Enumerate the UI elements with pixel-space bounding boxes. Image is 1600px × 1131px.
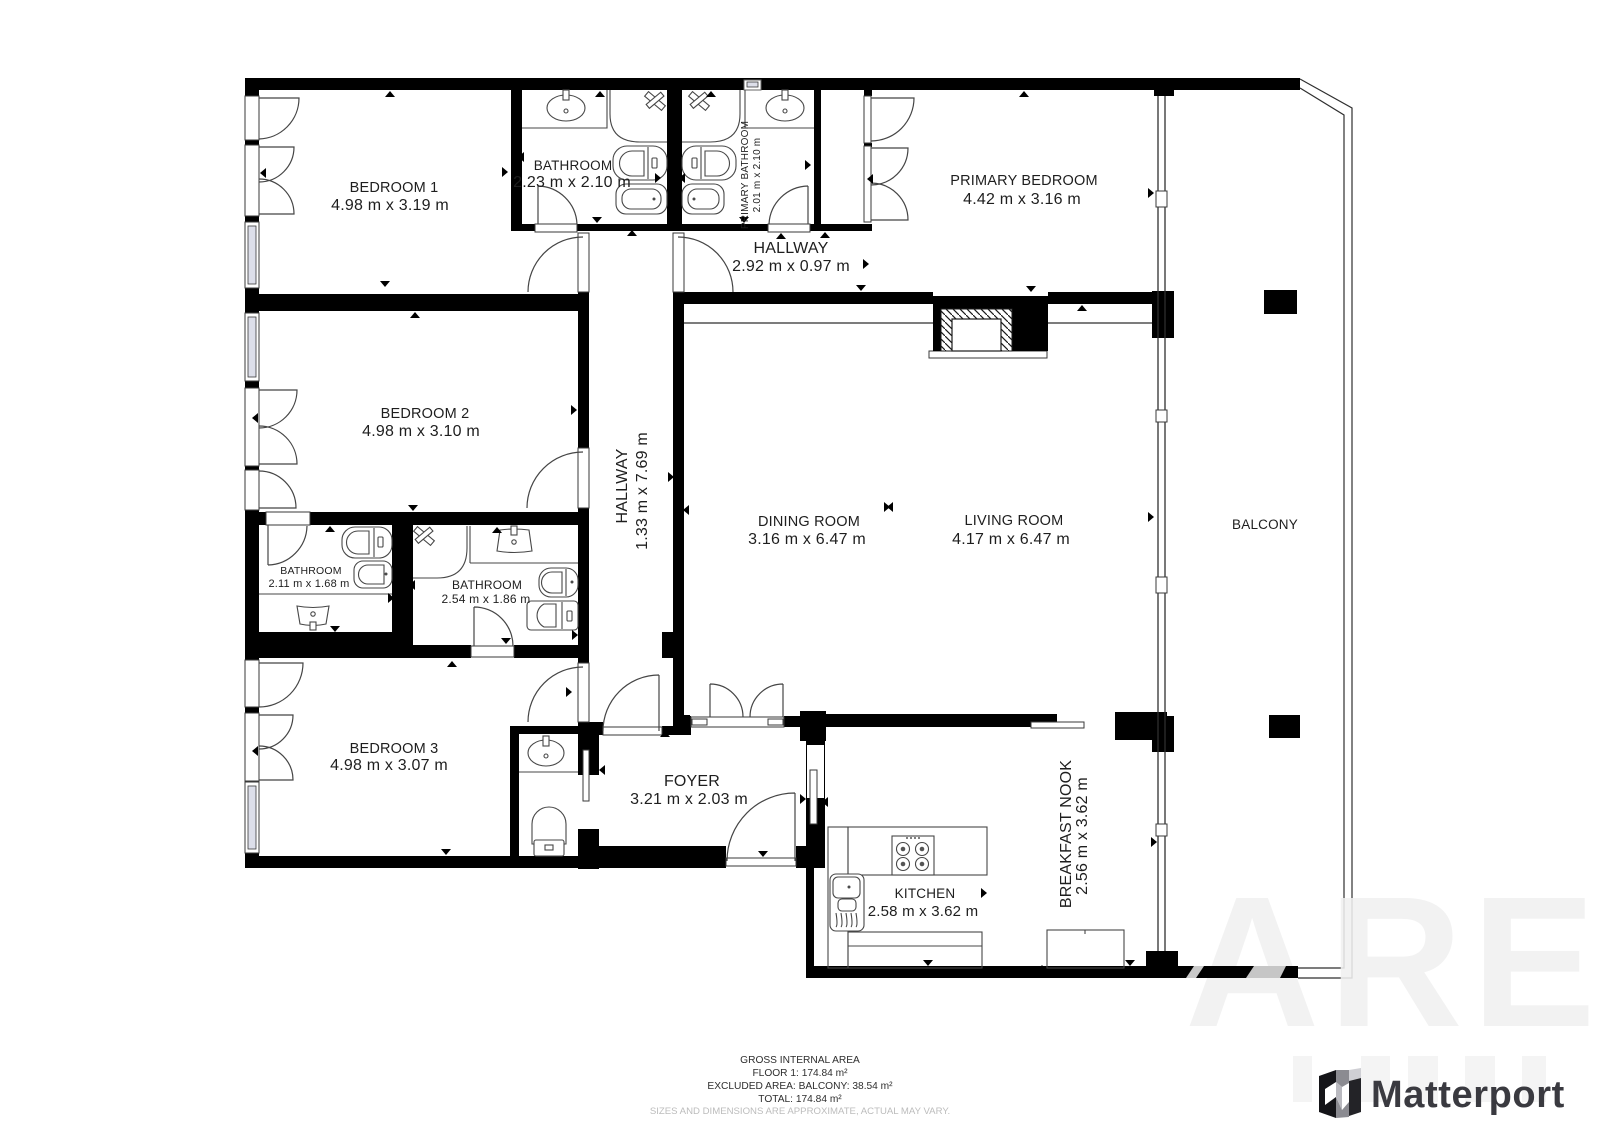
svg-text:BEDROOM 1: BEDROOM 1 (350, 180, 439, 196)
svg-text:2.54 m x 1.86 m: 2.54 m x 1.86 m (441, 592, 530, 606)
svg-text:BATHROOM: BATHROOM (280, 565, 342, 577)
svg-text:3.21 m x 2.03 m: 3.21 m x 2.03 m (630, 791, 748, 808)
svg-text:GROSS INTERNAL AREA: GROSS INTERNAL AREA (740, 1055, 860, 1066)
svg-text:BEDROOM 2: BEDROOM 2 (381, 406, 470, 422)
svg-text:4.17 m x 6.47 m: 4.17 m x 6.47 m (952, 531, 1070, 548)
svg-text:DINING ROOM: DINING ROOM (758, 514, 860, 530)
svg-text:HALLWAY: HALLWAY (614, 448, 631, 523)
svg-text:SIZES AND DIMENSIONS ARE APPRO: SIZES AND DIMENSIONS ARE APPROXIMATE, AC… (650, 1106, 950, 1117)
svg-text:Matterport: Matterport (1371, 1074, 1565, 1116)
svg-text:1.33 m x 7.69 m: 1.33 m x 7.69 m (634, 432, 651, 550)
svg-text:3.16 m x 6.47 m: 3.16 m x 6.47 m (748, 531, 866, 548)
svg-text:2.92 m x 0.97 m: 2.92 m x 0.97 m (732, 258, 850, 275)
svg-text:PRIMARY BEDROOM: PRIMARY BEDROOM (950, 173, 1098, 189)
svg-text:ARE: ARE (1185, 859, 1600, 1066)
svg-text:2.23 m x 2.10 m: 2.23 m x 2.10 m (513, 174, 631, 191)
svg-text:4.42 m x 3.16 m: 4.42 m x 3.16 m (963, 191, 1081, 208)
svg-text:KITCHEN: KITCHEN (895, 886, 956, 901)
svg-text:TOTAL: 174.84 m²: TOTAL: 174.84 m² (758, 1094, 842, 1105)
svg-text:PRIMARY BATHROOM: PRIMARY BATHROOM (740, 121, 751, 229)
svg-text:LIVING ROOM: LIVING ROOM (965, 513, 1064, 529)
svg-text:4.98 m x 3.10 m: 4.98 m x 3.10 m (362, 423, 480, 440)
svg-text:2.58 m x 3.62 m: 2.58 m x 3.62 m (868, 903, 979, 920)
svg-text:4.98 m x 3.07 m: 4.98 m x 3.07 m (330, 757, 448, 774)
svg-text:4.98 m x 3.19 m: 4.98 m x 3.19 m (331, 197, 449, 214)
svg-text:2.11 m x 1.68 m: 2.11 m x 1.68 m (268, 578, 349, 590)
svg-text:FLOOR 1: 174.84 m²: FLOOR 1: 174.84 m² (752, 1068, 848, 1079)
svg-text:BREAKFAST NOOK: BREAKFAST NOOK (1058, 760, 1075, 908)
svg-text:HALLWAY: HALLWAY (754, 240, 829, 257)
svg-text:BEDROOM 3: BEDROOM 3 (350, 741, 439, 757)
svg-text:BALCONY: BALCONY (1232, 517, 1298, 532)
svg-text:BATHROOM: BATHROOM (534, 158, 613, 173)
svg-text:FOYER: FOYER (664, 773, 720, 790)
svg-text:2.56 m x 3.62 m: 2.56 m x 3.62 m (1074, 777, 1091, 895)
svg-text:BATHROOM: BATHROOM (452, 578, 522, 592)
svg-text:EXCLUDED AREA: BALCONY: 38.54: EXCLUDED AREA: BALCONY: 38.54 m² (707, 1081, 893, 1092)
svg-text:2.01 m x 2.10 m: 2.01 m x 2.10 m (752, 138, 763, 213)
